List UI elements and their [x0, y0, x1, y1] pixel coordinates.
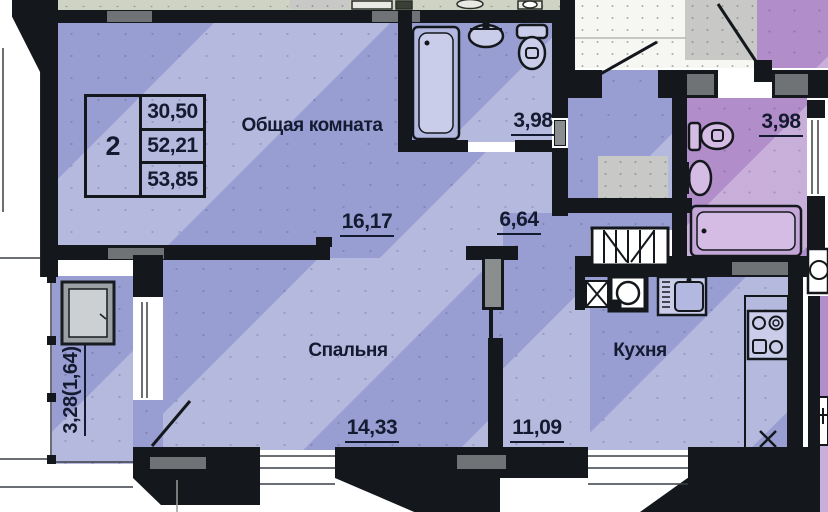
stove-icon	[748, 311, 788, 359]
hallway-area: 6,64	[490, 208, 548, 235]
kitchen-area: 11,09	[507, 416, 567, 443]
adjacent-sink-icon	[684, 161, 711, 195]
kitchen-sink-icon	[658, 277, 706, 315]
ventilation-block-icon	[592, 228, 668, 265]
unit-rooms-count: 2	[87, 97, 142, 195]
unit-info-table: 2 30,50 52,21 53,85	[84, 94, 206, 198]
bathtub-icon	[413, 27, 459, 139]
washing-machine-icon	[610, 276, 646, 310]
fixtures-overlay	[0, 0, 828, 512]
living-room-area: 16,17	[338, 210, 396, 237]
floor-plan: 2 30,50 52,21 53,85 Общая комната 16,17 …	[0, 0, 828, 512]
balcony-area: 3,28(1,64)	[60, 317, 86, 463]
adjacent-bathtub-icon	[691, 206, 801, 256]
adjacent-bathroom-area: 3,98	[752, 110, 810, 137]
sink-icon	[469, 22, 503, 47]
unit-living-area: 30,50	[142, 97, 203, 131]
upper-strip-fixtures	[352, 0, 542, 9]
toilet-icon	[517, 25, 547, 69]
adjacent-toilet-icon	[689, 123, 733, 150]
unit-area: 52,21	[142, 131, 203, 165]
adjacent-washer-icon	[808, 249, 828, 293]
adjacent-fixture-fragment	[819, 397, 828, 445]
kitchen-label: Кухня	[580, 340, 700, 362]
bathroom-area: 3,98	[504, 109, 562, 136]
unit-total-area: 53,85	[142, 164, 203, 195]
bedroom-area: 14,33	[342, 416, 402, 443]
vent-shaft-icon	[586, 281, 608, 307]
bedroom-label: Спальня	[288, 340, 408, 362]
living-room-label: Общая комната	[212, 115, 412, 137]
